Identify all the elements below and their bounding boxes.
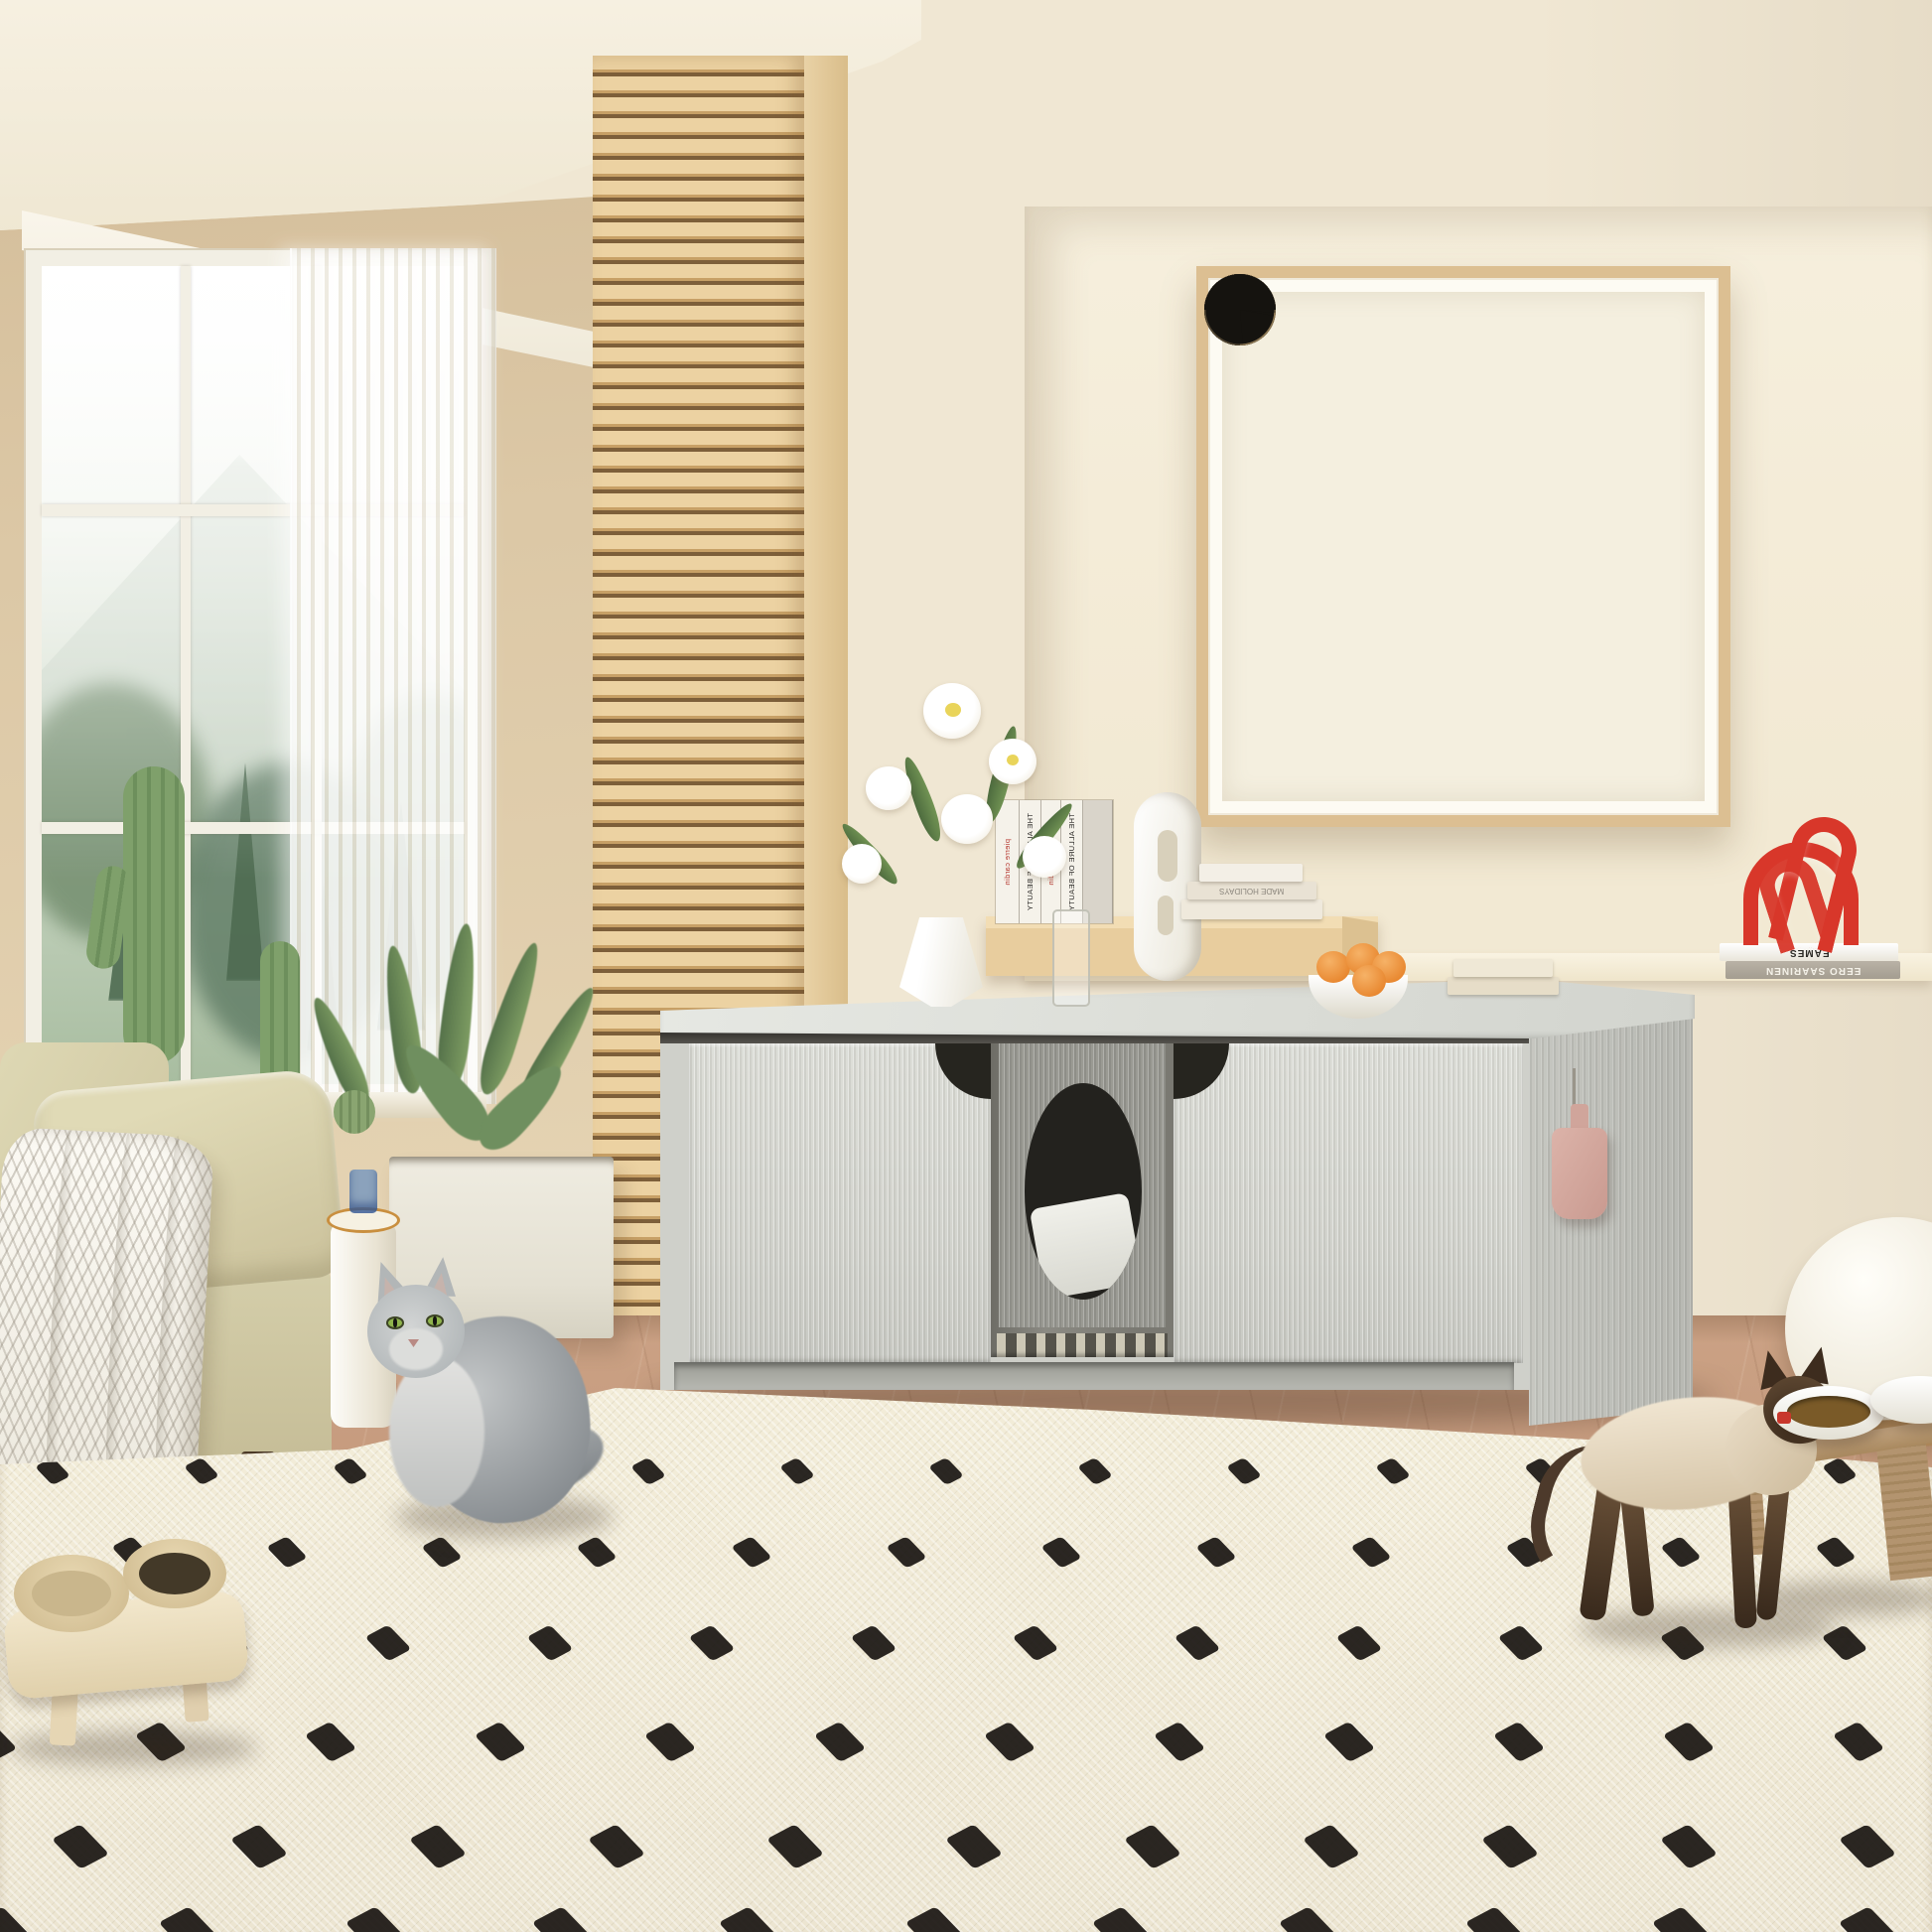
rug-diamond-dot bbox=[719, 1906, 781, 1932]
gray-cat-pupil bbox=[393, 1318, 397, 1327]
rug-diamond-dot bbox=[1154, 1722, 1206, 1762]
blanket-fold bbox=[42, 1130, 75, 1519]
rug-diamond-dot bbox=[886, 1536, 927, 1569]
rug-diamond-dot bbox=[588, 1824, 645, 1869]
stacked-book: MADE HOLIDAYS bbox=[1187, 882, 1316, 899]
cabinet-front bbox=[660, 1031, 1529, 1390]
rug-diamond-dot bbox=[945, 1824, 1003, 1869]
rug-diamond-dot bbox=[1195, 1536, 1237, 1569]
rug-diamond-dot bbox=[576, 1536, 618, 1569]
left-door-handle-cutout bbox=[935, 1043, 991, 1099]
rug-diamond-dot bbox=[475, 1722, 527, 1762]
rug-diamond-dot bbox=[850, 1625, 897, 1662]
rug-diamond-dot bbox=[266, 1536, 308, 1569]
rug-diamond-dot bbox=[1350, 1536, 1392, 1569]
rug-diamond-dot bbox=[1335, 1625, 1382, 1662]
white-flower bbox=[941, 794, 993, 844]
wall-art-frame bbox=[1196, 266, 1730, 827]
litter-oval-opening bbox=[1025, 1083, 1142, 1300]
gray-cat-pupil bbox=[433, 1316, 437, 1325]
rug-diamond-dot bbox=[526, 1625, 573, 1662]
white-flower bbox=[1023, 836, 1066, 878]
litter-compartment bbox=[991, 1043, 1173, 1386]
rug-diamond-dot bbox=[1092, 1906, 1155, 1932]
rug-diamond-dot bbox=[1660, 1536, 1702, 1569]
rug-diamond-dot bbox=[731, 1536, 772, 1569]
flower-center bbox=[945, 703, 961, 717]
book-spine-title: THE ALLURE OF BEAUTY bbox=[1067, 813, 1076, 910]
rug-diamond-dot bbox=[1173, 1625, 1220, 1662]
rug-diamond-dot bbox=[779, 1457, 815, 1485]
book-spine-brand: pierre cardin bbox=[1003, 839, 1012, 886]
rug-diamond-dot bbox=[52, 1824, 109, 1869]
white-flower bbox=[866, 766, 911, 810]
rug-diamond-dot bbox=[1226, 1457, 1262, 1485]
cabinet-left-door bbox=[689, 1043, 991, 1363]
rug-diamond-dot bbox=[688, 1625, 735, 1662]
rug-diamond-dot bbox=[1833, 1722, 1885, 1762]
rug-diamond-dot bbox=[766, 1824, 824, 1869]
feeder-shadow bbox=[10, 1731, 258, 1765]
rug-diamond-dot bbox=[1660, 1824, 1718, 1869]
right-door-handle-cutout bbox=[1173, 1043, 1229, 1099]
gray-cat-muzzle bbox=[389, 1328, 443, 1370]
rug-diamond-dot bbox=[1040, 1536, 1082, 1569]
siamese-shadow bbox=[1579, 1608, 1837, 1648]
wood-bowl-with-food bbox=[123, 1539, 226, 1608]
rug-diamond-dot bbox=[630, 1457, 666, 1485]
rug-diamond-dot bbox=[1663, 1722, 1716, 1762]
living-room-scene: EAMES EERO SAARINEN bbox=[0, 0, 1932, 1932]
rug-diamond-dot bbox=[1481, 1824, 1539, 1869]
cabinet-right-door bbox=[1173, 1043, 1523, 1363]
white-flower bbox=[842, 844, 882, 884]
rug-diamond-dot bbox=[1839, 1824, 1896, 1869]
rug-diamond-dot bbox=[928, 1457, 964, 1485]
rug-diamond-dot bbox=[1652, 1906, 1715, 1932]
stacked-book bbox=[1199, 864, 1303, 882]
rug-diamond-dot bbox=[1465, 1906, 1528, 1932]
rug-diamond-dot bbox=[1012, 1625, 1058, 1662]
art-grid bbox=[1240, 310, 1687, 783]
cat-food bbox=[1787, 1396, 1870, 1428]
blue-glass bbox=[349, 1170, 377, 1213]
rug-diamond-dot bbox=[421, 1536, 463, 1569]
litter-inner-panel bbox=[999, 1043, 1166, 1327]
rug-diamond-dot bbox=[1822, 1457, 1858, 1485]
cabinet-side-panel bbox=[1529, 999, 1693, 1426]
rug-diamond-dot bbox=[159, 1906, 221, 1932]
rug-diamond-dot bbox=[230, 1824, 288, 1869]
rug-diamond-dot bbox=[305, 1722, 357, 1762]
tabletop-book bbox=[1453, 959, 1553, 977]
totem-hole bbox=[1158, 830, 1177, 882]
bowl-logo bbox=[1777, 1412, 1791, 1424]
litter-box bbox=[1030, 1192, 1142, 1300]
rug-diamond-dot bbox=[1323, 1722, 1376, 1762]
wood-bowl bbox=[14, 1555, 129, 1632]
rug-diamond-dot bbox=[1077, 1457, 1113, 1485]
cabinet-plinth bbox=[674, 1362, 1514, 1390]
ledge-book-saarinen: EERO SAARINEN bbox=[1725, 961, 1900, 979]
rug-diamond-dot bbox=[1497, 1625, 1544, 1662]
rug-diamond-dot bbox=[0, 1906, 34, 1932]
food-bowl bbox=[1773, 1386, 1884, 1440]
wall-art-paper bbox=[1222, 292, 1705, 801]
glass-cup bbox=[1052, 909, 1090, 1007]
rug-diamond-dot bbox=[1839, 1906, 1901, 1932]
rug-diamond-dot bbox=[984, 1722, 1036, 1762]
rug-diamond-dot bbox=[644, 1722, 697, 1762]
gray-book bbox=[1083, 800, 1113, 923]
bowl-interior bbox=[32, 1571, 111, 1616]
rug-diamond-dot bbox=[814, 1722, 867, 1762]
flower-center bbox=[1007, 755, 1019, 765]
gray-cat-chest bbox=[389, 1356, 484, 1507]
book-title: EERO SAARINEN bbox=[1765, 965, 1861, 976]
tabletop-book bbox=[1448, 977, 1559, 995]
pink-litter-scoop-bag bbox=[1552, 1128, 1607, 1219]
tall-cactus bbox=[123, 766, 185, 1064]
rug-diamond-dot bbox=[1493, 1722, 1546, 1762]
rug-diamond-dot bbox=[333, 1457, 368, 1485]
rug-diamond-dot bbox=[905, 1906, 968, 1932]
rug-diamond-dot bbox=[1279, 1906, 1341, 1932]
totem-hole bbox=[1158, 896, 1173, 935]
rug-diamond-dot bbox=[1303, 1824, 1360, 1869]
rug-diamond-dot bbox=[409, 1824, 467, 1869]
bowl-food bbox=[139, 1553, 210, 1594]
book-spine: MADE HOLIDAYS bbox=[1219, 887, 1284, 896]
rug-diamond-dot bbox=[1124, 1824, 1181, 1869]
rug-diamond-dot bbox=[364, 1625, 411, 1662]
orange bbox=[1316, 951, 1350, 983]
rug-diamond-dot bbox=[1815, 1536, 1857, 1569]
rug-diamond-dot bbox=[1375, 1457, 1411, 1485]
stacked-book bbox=[1181, 899, 1322, 919]
rug-diamond-dot bbox=[345, 1906, 408, 1932]
rug-diamond-dot bbox=[0, 1722, 17, 1762]
orange bbox=[1352, 965, 1386, 997]
rug-diamond-dot bbox=[532, 1906, 595, 1932]
ball-cactus bbox=[334, 1090, 375, 1134]
rug-diamond-dot bbox=[184, 1457, 219, 1485]
